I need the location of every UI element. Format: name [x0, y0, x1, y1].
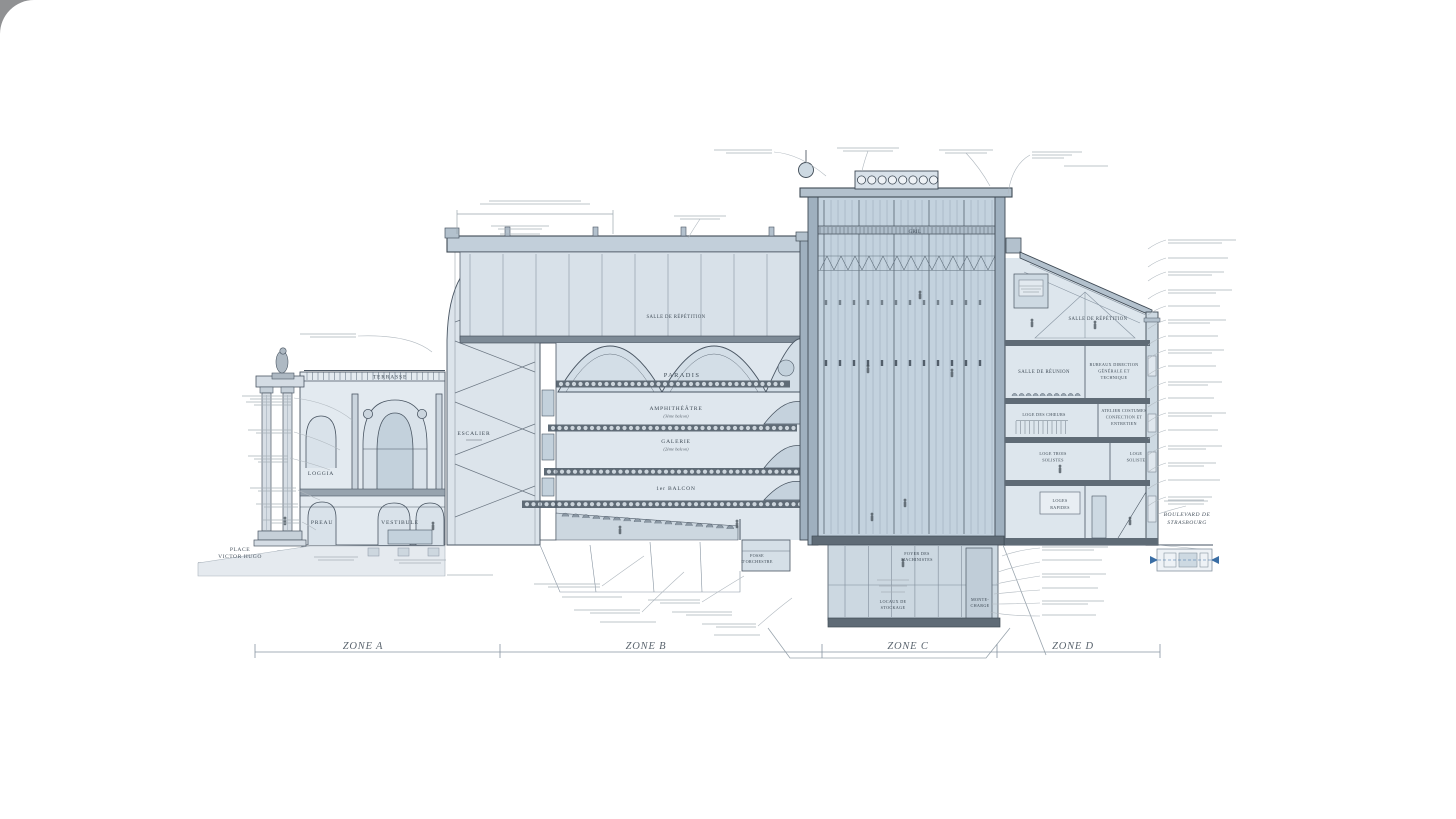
loge-soliste-line1: LOGE	[1130, 451, 1143, 456]
terrasse-label: TERRASSE	[373, 375, 407, 381]
street-left-line1: PLACE	[230, 547, 250, 553]
loggia-niche	[306, 416, 336, 468]
loges-rapides-frame	[1040, 492, 1080, 514]
atelier-line1: ATELIER COSTUMES	[1101, 408, 1147, 413]
stockage-line1: LOCAUX DE	[880, 599, 907, 604]
stockage-line2: STOCKAGE	[881, 605, 906, 610]
foyer-machinistes-line1: FOYER DES	[904, 551, 930, 556]
key-plan-inset	[1150, 549, 1219, 571]
amphitheatre-label: AMPHITHÉÂTRE	[649, 404, 702, 412]
galerie-label: GALERIE	[661, 439, 691, 445]
atelier-line2: CONFECTION ET	[1106, 415, 1143, 420]
corner-finial	[799, 163, 814, 178]
escalier-label: ESCALIER	[457, 431, 490, 437]
street-left-line2: VICTOR HUGO	[218, 554, 262, 560]
bureaux-line1: BUREAUX DIRECTION	[1090, 362, 1139, 367]
fosse-label-line1: FOSSE	[750, 553, 764, 558]
zoned-rehearsal-label: SALLE DE RÉPÉTITION	[1068, 316, 1127, 322]
premier-balcon-label: 1er BALCON	[656, 486, 696, 492]
loges-rapides-line1: LOGES	[1053, 498, 1068, 503]
salle-reunion-label: SALLE DE RÉUNION	[1018, 369, 1070, 375]
zone-a-label: ZONE A	[343, 641, 384, 652]
street-right-line1: BOULEVARD DE	[1164, 512, 1211, 518]
vestibule-label: VESTIBULE	[381, 520, 419, 526]
monte-charge-shaft	[966, 548, 992, 620]
loges-rapides-line2: RAPIDES	[1050, 505, 1070, 510]
zone-b-label: ZONE B	[626, 641, 667, 652]
fosse-label-line2: D'ORCHESTRE	[741, 559, 773, 564]
gril-label: GRIL	[909, 230, 922, 235]
street-right-line2: STRASBOURG	[1167, 520, 1207, 526]
monte-charge-line1: MONTE-	[971, 597, 989, 602]
loge-choeurs-label: LOGE DES CHŒURS	[1022, 412, 1066, 417]
galerie-sublabel: (2ème balcon)	[663, 447, 689, 452]
monte-charge-line2: CHARGE	[970, 603, 989, 608]
foyer-machinistes-line2: MACHINISTES	[901, 557, 933, 562]
atelier-line3: ENTRETIEN	[1111, 421, 1137, 426]
bureaux-line3: TECHNIQUE	[1101, 375, 1128, 380]
zone-c-label: ZONE C	[887, 641, 928, 652]
loge-trois-line2: SOLISTES	[1042, 458, 1064, 463]
loge-trois-line1: LOGE TROIS	[1039, 451, 1067, 456]
preau-label: PREAU	[311, 520, 333, 526]
paradis-label: PARADIS	[664, 372, 701, 379]
amphitheatre-sublabel: (3ème balcon)	[663, 414, 689, 419]
loggia-label: LOGGIA	[308, 471, 334, 477]
bureaux-line2: GÉNÉRALE ET	[1098, 369, 1130, 374]
loge-soliste-line2: SOLISTE	[1127, 458, 1146, 463]
zone-d-label: ZONE D	[1052, 641, 1094, 652]
attic-rehearsal-label: SALLE DE RÉPÉTITION	[646, 314, 705, 320]
theater-section-drawing: ZONE A ZONE B ZONE C ZONE D PLACE VICTOR…	[0, 0, 1456, 819]
